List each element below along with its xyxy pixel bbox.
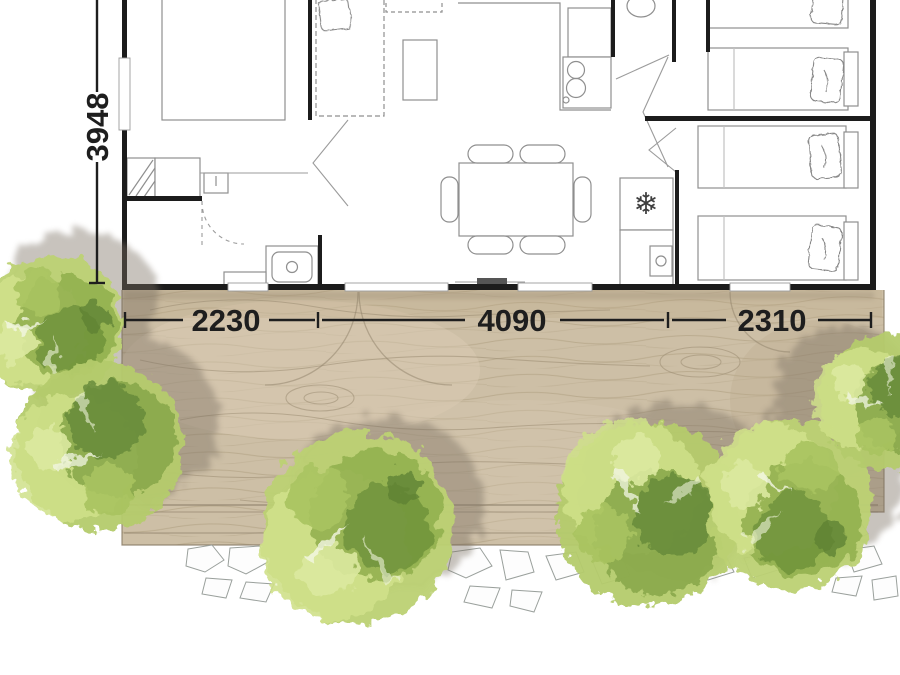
wall-exterior-left (122, 0, 127, 60)
bathroom-cabinet (155, 158, 200, 197)
tree (262, 431, 454, 623)
wall-between-bedrooms (645, 116, 874, 121)
wall-vent (477, 278, 507, 284)
kitchen-sink-unit (563, 57, 611, 108)
cabinet-inset (650, 246, 672, 276)
bed-headboard (844, 52, 858, 106)
dimension-label-segment-3: 2310 (738, 303, 807, 338)
double-bed (162, 0, 285, 120)
dining-table (459, 163, 573, 236)
window-bottom (228, 283, 268, 291)
wall-kitchen-wc (611, 0, 615, 57)
patio-door (345, 283, 448, 291)
window-bottom (518, 283, 592, 291)
floor-plan: ❄ (0, 0, 900, 675)
dining-chair (468, 145, 513, 163)
window-bottom (730, 283, 790, 291)
window-left (119, 58, 130, 130)
floor-plan-canvas: ❄ (0, 0, 900, 675)
building: ❄ (119, 0, 876, 291)
dining-chair (520, 145, 565, 163)
dining-chair (574, 177, 591, 222)
dimension-label-segment-1: 2230 (192, 303, 261, 338)
wall-wc-right (672, 0, 676, 62)
dimension-label-segment-2: 4090 (478, 303, 547, 338)
wall-bathroom-right (318, 235, 322, 290)
bed-headboard (844, 222, 858, 280)
bed-headboard (844, 132, 858, 188)
kitchen-appliance (568, 8, 611, 57)
wall-bedroom-living (308, 0, 312, 120)
dining-chair (468, 236, 513, 254)
dimension-label-height: 3948 (80, 93, 115, 162)
coffee-table (403, 40, 437, 100)
wall-shadow-on-deck (124, 292, 874, 299)
wall-exterior-right (870, 0, 876, 290)
wall-bathroom (122, 196, 202, 201)
dining-chair (441, 177, 458, 222)
wall-bedroom1-left (706, 0, 710, 52)
wall-bedroom2-left (675, 170, 679, 284)
snowflake-icon: ❄ (633, 187, 658, 222)
dining-chair (520, 236, 565, 254)
pillow (811, 0, 844, 25)
pillow (318, 0, 352, 32)
